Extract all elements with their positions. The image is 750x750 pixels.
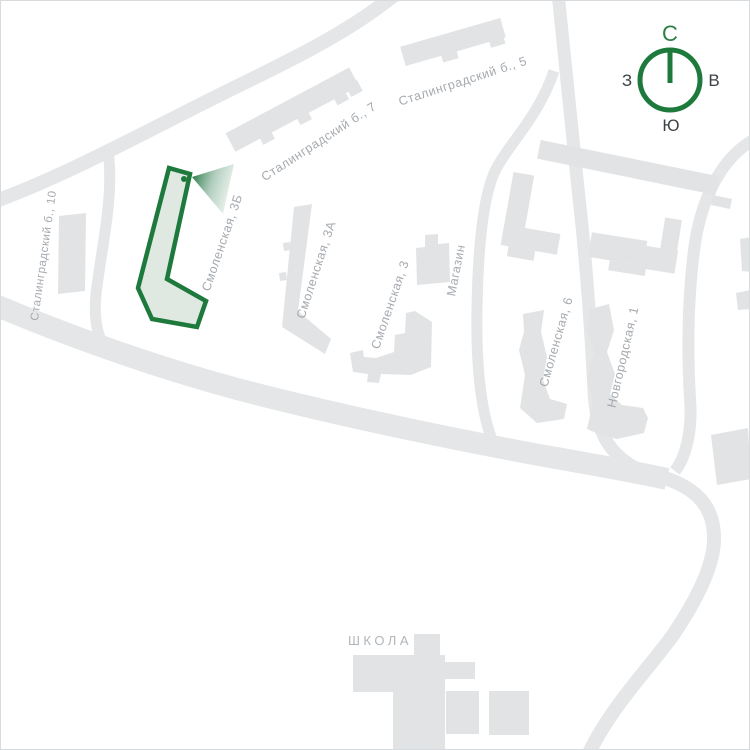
- label-school: ШКОЛА: [348, 633, 412, 648]
- road-southeast-sweep: [589, 478, 714, 750]
- building-smolenskaya-3b-highlighted[interactable]: [138, 168, 206, 327]
- site-plan-map: Сталинградский б., 10 Сталинградский б.,…: [0, 0, 750, 750]
- building-school: [353, 634, 529, 749]
- building-marker-dot: [181, 176, 187, 182]
- building-right-block-mid: [586, 207, 682, 281]
- building-stalingradsky-10: [58, 213, 86, 294]
- compass-north-label: С: [662, 21, 678, 46]
- building-magazin: [416, 234, 450, 285]
- building-fragment-3: [736, 290, 750, 310]
- building-rotated-square: [711, 428, 750, 485]
- building-fragment-1: [711, 195, 732, 209]
- building-right-block-l: [499, 172, 570, 265]
- compass-east-label: В: [708, 71, 719, 90]
- building-right-block-slab: [537, 140, 719, 195]
- compass: С В З Ю: [622, 21, 720, 135]
- building-fragment-2: [740, 237, 750, 272]
- compass-west-label: З: [622, 71, 632, 90]
- compass-south-label: Ю: [662, 116, 679, 135]
- label-stalingradsky-10: Сталинградский б., 10: [29, 190, 59, 322]
- road-branch-west: [95, 151, 110, 345]
